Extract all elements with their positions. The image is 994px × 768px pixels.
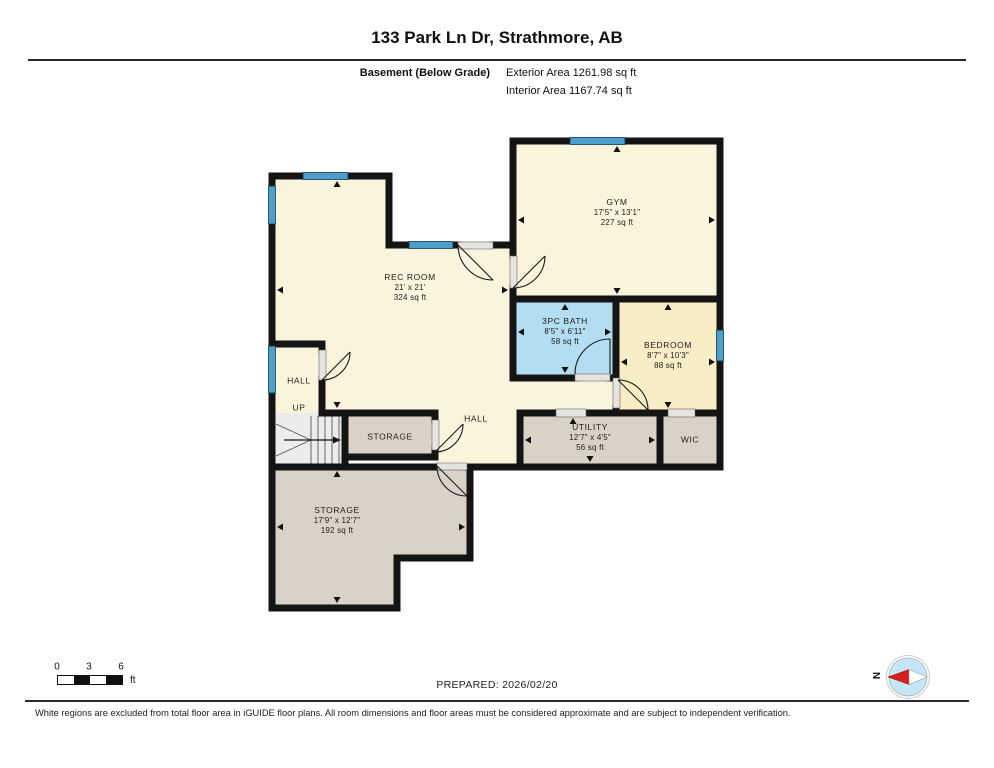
room-dims-storage-big: 17'9" x 12'7" <box>314 516 360 526</box>
window-left-lower <box>269 346 276 393</box>
rec-room-fill <box>272 245 513 413</box>
door-slab-rec-gym <box>458 242 493 249</box>
room-label-hall-center: HALL <box>464 413 488 424</box>
room-label-bedroom: BEDROOM 8'7" x 10'3" 88 sq ft <box>644 340 692 372</box>
room-area-bath: 58 sq ft <box>542 338 588 348</box>
footer-divider <box>25 700 969 702</box>
door-slab-storage-small <box>432 420 439 450</box>
door-slab-storage-big <box>437 463 467 470</box>
window-gym-top <box>570 138 625 145</box>
room-dims-bath: 8'5" x 6'11" <box>542 327 588 337</box>
door-slab-bath <box>575 374 610 381</box>
floor-plan-page: 133 Park Ln Dr, Strathmore, AB Basement … <box>0 0 994 768</box>
hall-lower-fill <box>513 378 616 413</box>
window-left-upper <box>269 186 276 224</box>
room-label-hall-left: HALL <box>287 375 311 386</box>
room-name-hall-left: HALL <box>287 375 311 386</box>
room-label-storage-big: STORAGE 17'9" x 12'7" 192 sq ft <box>314 505 360 537</box>
room-dims-gym: 17'5" x 13'1" <box>594 208 640 218</box>
scale-tick-6: 6 <box>118 662 124 673</box>
room-area-bedroom: 88 sq ft <box>644 362 692 372</box>
door-slab-hall-left <box>319 350 326 380</box>
room-label-gym: GYM 17'5" x 13'1" 227 sq ft <box>594 197 640 229</box>
room-name-gym: GYM <box>594 197 640 208</box>
room-dims-bedroom: 8'7" x 10'3" <box>644 351 692 361</box>
room-name-hall-center: HALL <box>464 413 488 424</box>
door-slab-wic <box>668 409 695 417</box>
room-name-wic: WIC <box>681 434 699 445</box>
room-name-storage-small: STORAGE <box>367 431 413 442</box>
door-slab-utility <box>556 409 586 417</box>
room-label-bath: 3PC BATH 8'5" x 6'11" 58 sq ft <box>542 316 588 348</box>
room-label-utility: UTILITY 12'7" x 4'5" 56 sq ft <box>569 422 611 454</box>
room-name-rec-room: REC ROOM <box>384 272 436 283</box>
compass <box>887 656 930 699</box>
room-area-storage-big: 192 sq ft <box>314 527 360 537</box>
room-dims-rec-room: 21' x 21' <box>384 283 436 293</box>
room-name-bedroom: BEDROOM <box>644 340 692 351</box>
floor-plan-drawing <box>0 0 994 768</box>
storage-big-fill <box>272 467 470 608</box>
room-name-utility: UTILITY <box>569 422 611 433</box>
prepared-date: PREPARED: 2026/02/20 <box>0 679 994 691</box>
room-name-storage-big: STORAGE <box>314 505 360 516</box>
room-label-rec-room: REC ROOM 21' x 21' 324 sq ft <box>384 272 436 304</box>
door-slab-gym <box>510 256 517 288</box>
scale-tick-0: 0 <box>54 662 60 673</box>
room-area-utility: 56 sq ft <box>569 444 611 454</box>
room-area-gym: 227 sq ft <box>594 219 640 229</box>
room-label-wic: WIC <box>681 434 699 445</box>
window-rec-top <box>303 173 348 180</box>
door-slab-bedroom <box>613 378 620 408</box>
room-dims-utility: 12'7" x 4'5" <box>569 433 611 443</box>
room-name-bath: 3PC BATH <box>542 316 588 327</box>
window-step-wall <box>409 242 453 249</box>
rec-room-upper-fill <box>272 176 389 245</box>
room-label-storage-small: STORAGE <box>367 431 413 442</box>
label-stairs-up: UP <box>292 402 305 413</box>
disclaimer-text: White regions are excluded from total fl… <box>35 708 791 718</box>
window-bedroom-right <box>717 330 724 361</box>
room-area-rec-room: 324 sq ft <box>384 294 436 304</box>
scale-tick-3: 3 <box>86 662 92 673</box>
compass-north-letter: N <box>872 672 883 679</box>
stairs-up-text: UP <box>292 402 305 413</box>
